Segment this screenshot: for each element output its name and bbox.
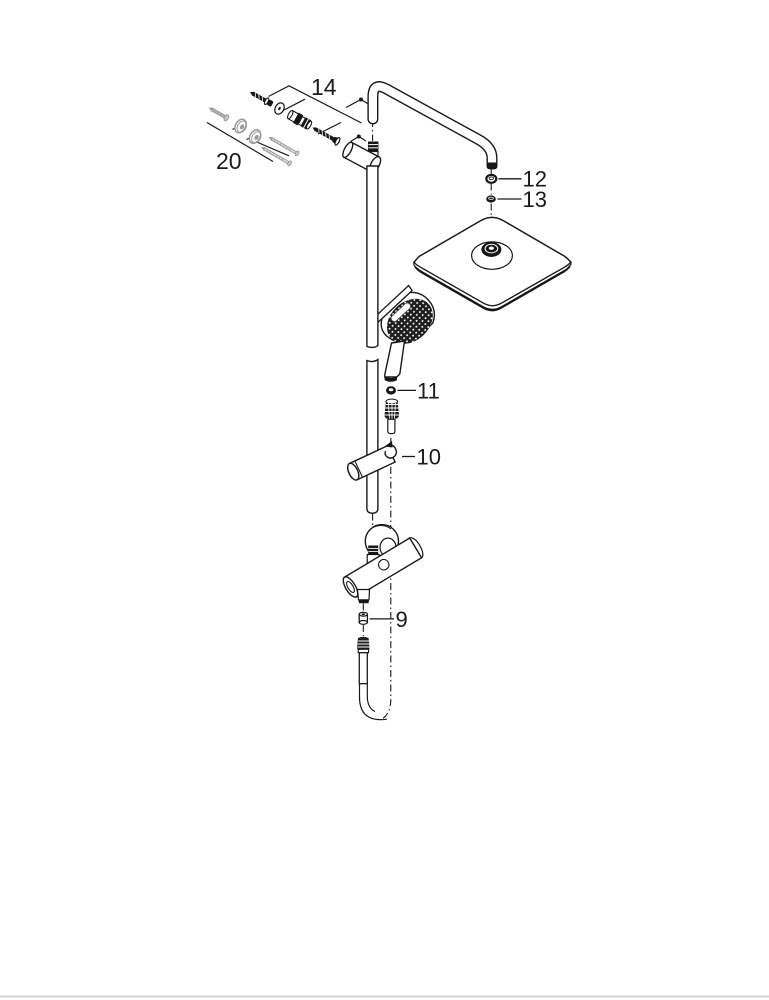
svg-text:10: 10 bbox=[417, 445, 441, 470]
svg-text:20: 20 bbox=[216, 148, 242, 174]
svg-text:13: 13 bbox=[523, 187, 547, 212]
svg-text:9: 9 bbox=[396, 607, 408, 632]
svg-text:14: 14 bbox=[311, 74, 337, 100]
svg-text:11: 11 bbox=[417, 379, 440, 404]
